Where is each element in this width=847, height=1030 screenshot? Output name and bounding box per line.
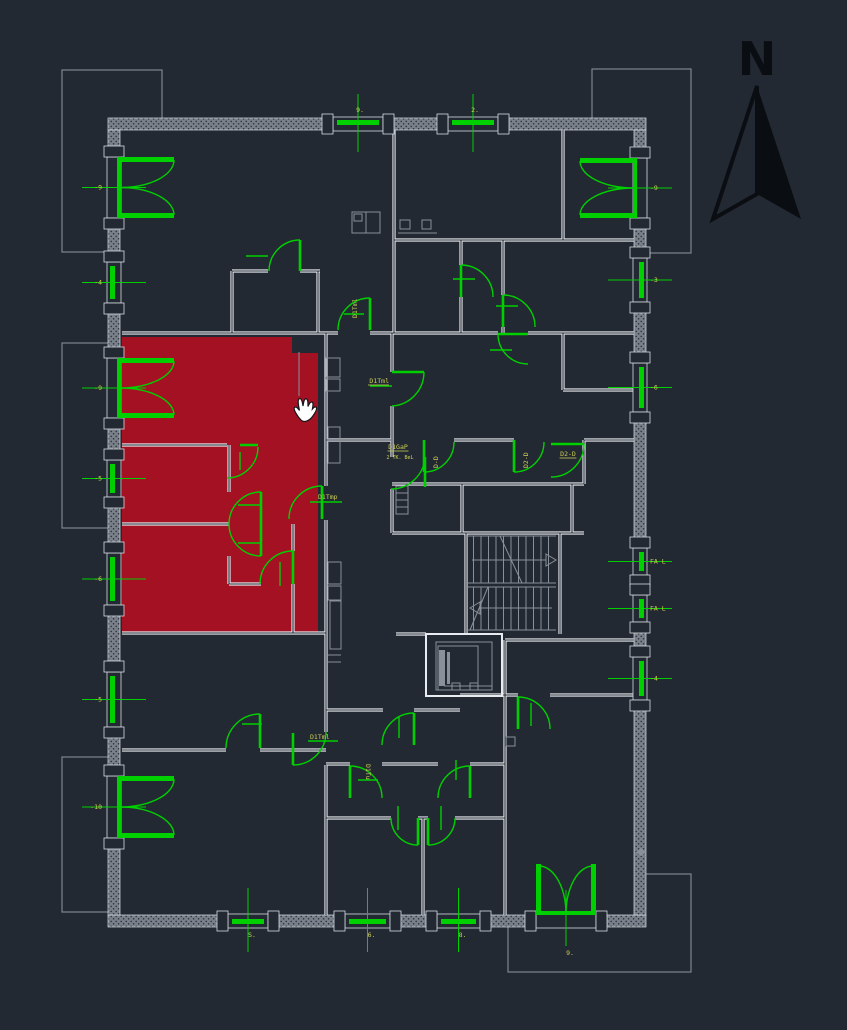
door-leaf[interactable] (120, 413, 174, 418)
opening-frame (630, 247, 650, 258)
opening-frame (630, 352, 650, 363)
opening-frame (630, 584, 650, 595)
opening-frame (383, 114, 394, 134)
opening-tag: -9 (94, 384, 102, 392)
opening-tag: 6. (368, 931, 376, 939)
opening-frame (104, 497, 124, 508)
balcony-outline (62, 343, 110, 528)
door-tag: D1Tml (310, 733, 330, 741)
door-leaf[interactable] (120, 358, 174, 363)
opening-frame (630, 537, 650, 548)
door-leaf[interactable] (120, 157, 174, 162)
opening-tag: -6 (94, 575, 102, 583)
opening-frame (334, 911, 345, 931)
opening-frame (104, 418, 124, 429)
balcony-outline (62, 757, 110, 912)
opening-frame (104, 765, 124, 776)
opening-frame (630, 302, 650, 313)
opening-tag: -9 (650, 184, 658, 192)
opening-tag: -5 (94, 696, 102, 704)
wall-segment (634, 412, 646, 548)
door-leaf[interactable] (591, 864, 596, 915)
opening-frame (630, 218, 650, 229)
elevator-rail (447, 652, 450, 684)
opening-frame (104, 727, 124, 738)
opening-frame (268, 911, 279, 931)
door-leaf[interactable] (120, 833, 174, 838)
north-arrow: N (713, 32, 801, 219)
opening-frame (104, 838, 124, 849)
opening-frame (630, 147, 650, 158)
opening-frame (104, 146, 124, 157)
opening-frame (630, 700, 650, 711)
opening-tag: -4 (650, 675, 658, 683)
wall-segment (634, 700, 646, 915)
door-leaf[interactable] (120, 776, 174, 781)
opening-tag: -5 (94, 475, 102, 483)
door-tag: D1GaP (388, 443, 408, 451)
floorplan-svg[interactable]: -9-4-9-5-6-5-10-9-3-6FA LFA L-49.2.S.6.8… (0, 0, 847, 1030)
opening-frame (104, 661, 124, 672)
wall-segment (108, 118, 333, 130)
door-tag: D2-D (560, 450, 576, 458)
opening-frame (104, 347, 124, 358)
door-leaf[interactable] (120, 213, 174, 218)
opening-frame (104, 218, 124, 229)
opening-tag: 9. (566, 949, 574, 957)
apartment-fill[interactable] (122, 337, 318, 633)
cad-viewport[interactable]: -9-4-9-5-6-5-10-9-3-6FA LFA L-49.2.S.6.8… (0, 0, 847, 1030)
opening-frame (437, 114, 448, 134)
opening-tag: 9. (356, 106, 364, 114)
door-tag: D-D (432, 456, 440, 468)
opening-frame (322, 114, 333, 134)
door-tag: D2-D (522, 452, 530, 468)
opening-frame (480, 911, 491, 931)
opening-frame (104, 542, 124, 553)
door-tag: D1Tml (369, 377, 389, 385)
opening-frame (630, 412, 650, 423)
opening-frame (525, 911, 536, 931)
highlighted-apartment[interactable] (122, 337, 318, 633)
door-tag: D1Tml (351, 298, 359, 318)
opening-frame (104, 605, 124, 616)
opening-tag: -4 (94, 279, 102, 287)
opening-frame (596, 911, 607, 931)
opening-tag: 2. (471, 106, 479, 114)
wall-segment (268, 915, 345, 927)
opening-tag: 8. (459, 931, 467, 939)
north-arrow-solid (757, 86, 801, 219)
opening-tag: -6 (650, 384, 658, 392)
opening-frame (630, 622, 650, 633)
opening-frame (390, 911, 401, 931)
opening-tag: S. (248, 931, 256, 939)
north-label: N (738, 32, 777, 86)
door-leaf[interactable] (536, 864, 541, 915)
opening-frame (104, 303, 124, 314)
door-leaf[interactable] (580, 213, 634, 218)
opening-frame (426, 911, 437, 931)
door-tag: 2 TK. BeL (386, 455, 413, 461)
wall-segment (108, 915, 228, 927)
opening-tag: -3 (650, 276, 658, 284)
door-tag: D1Tu (364, 764, 372, 780)
opening-frame (104, 251, 124, 262)
opening-tag: -9 (94, 184, 102, 192)
opening-frame (630, 646, 650, 657)
door-leaf[interactable] (580, 158, 634, 163)
elevator-rail (439, 650, 445, 686)
opening-frame (104, 449, 124, 460)
opening-tag: FA L (650, 558, 666, 566)
north-arrow-outline (713, 86, 757, 219)
opening-tag: FA L (650, 605, 666, 613)
wall-segment (108, 838, 120, 915)
opening-frame (217, 911, 228, 931)
opening-frame (498, 114, 509, 134)
wall-segment (498, 118, 646, 130)
door-tag: D1Tmp (318, 493, 338, 501)
opening-tag: -10 (90, 803, 102, 811)
